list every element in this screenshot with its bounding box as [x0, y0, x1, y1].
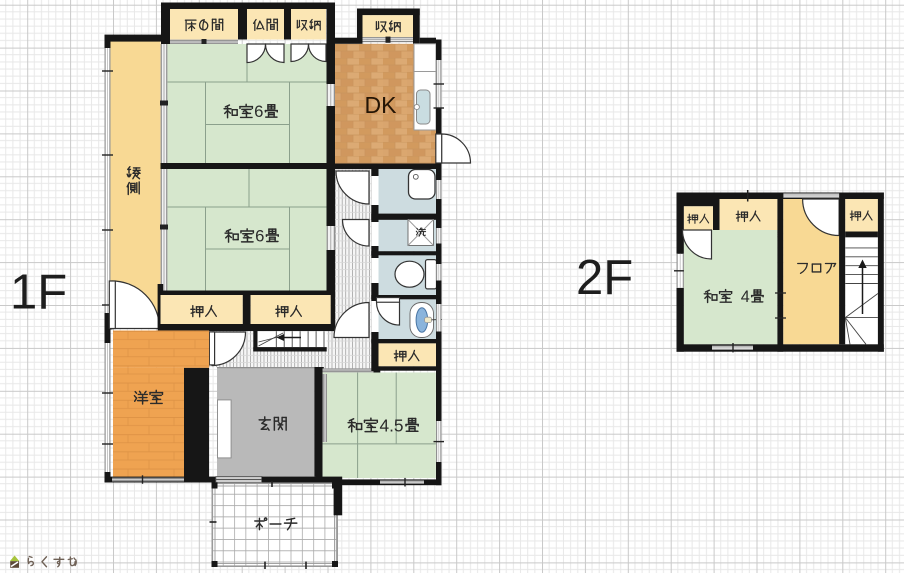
svg-text:1F: 1F — [10, 265, 67, 319]
svg-text:6: 6 — [254, 102, 263, 121]
svg-text:2F: 2F — [576, 251, 633, 305]
svg-text:6: 6 — [255, 227, 264, 246]
svg-text:4: 4 — [741, 288, 750, 306]
svg-text:DK: DK — [365, 92, 398, 118]
svg-text:4.5: 4.5 — [379, 415, 403, 435]
